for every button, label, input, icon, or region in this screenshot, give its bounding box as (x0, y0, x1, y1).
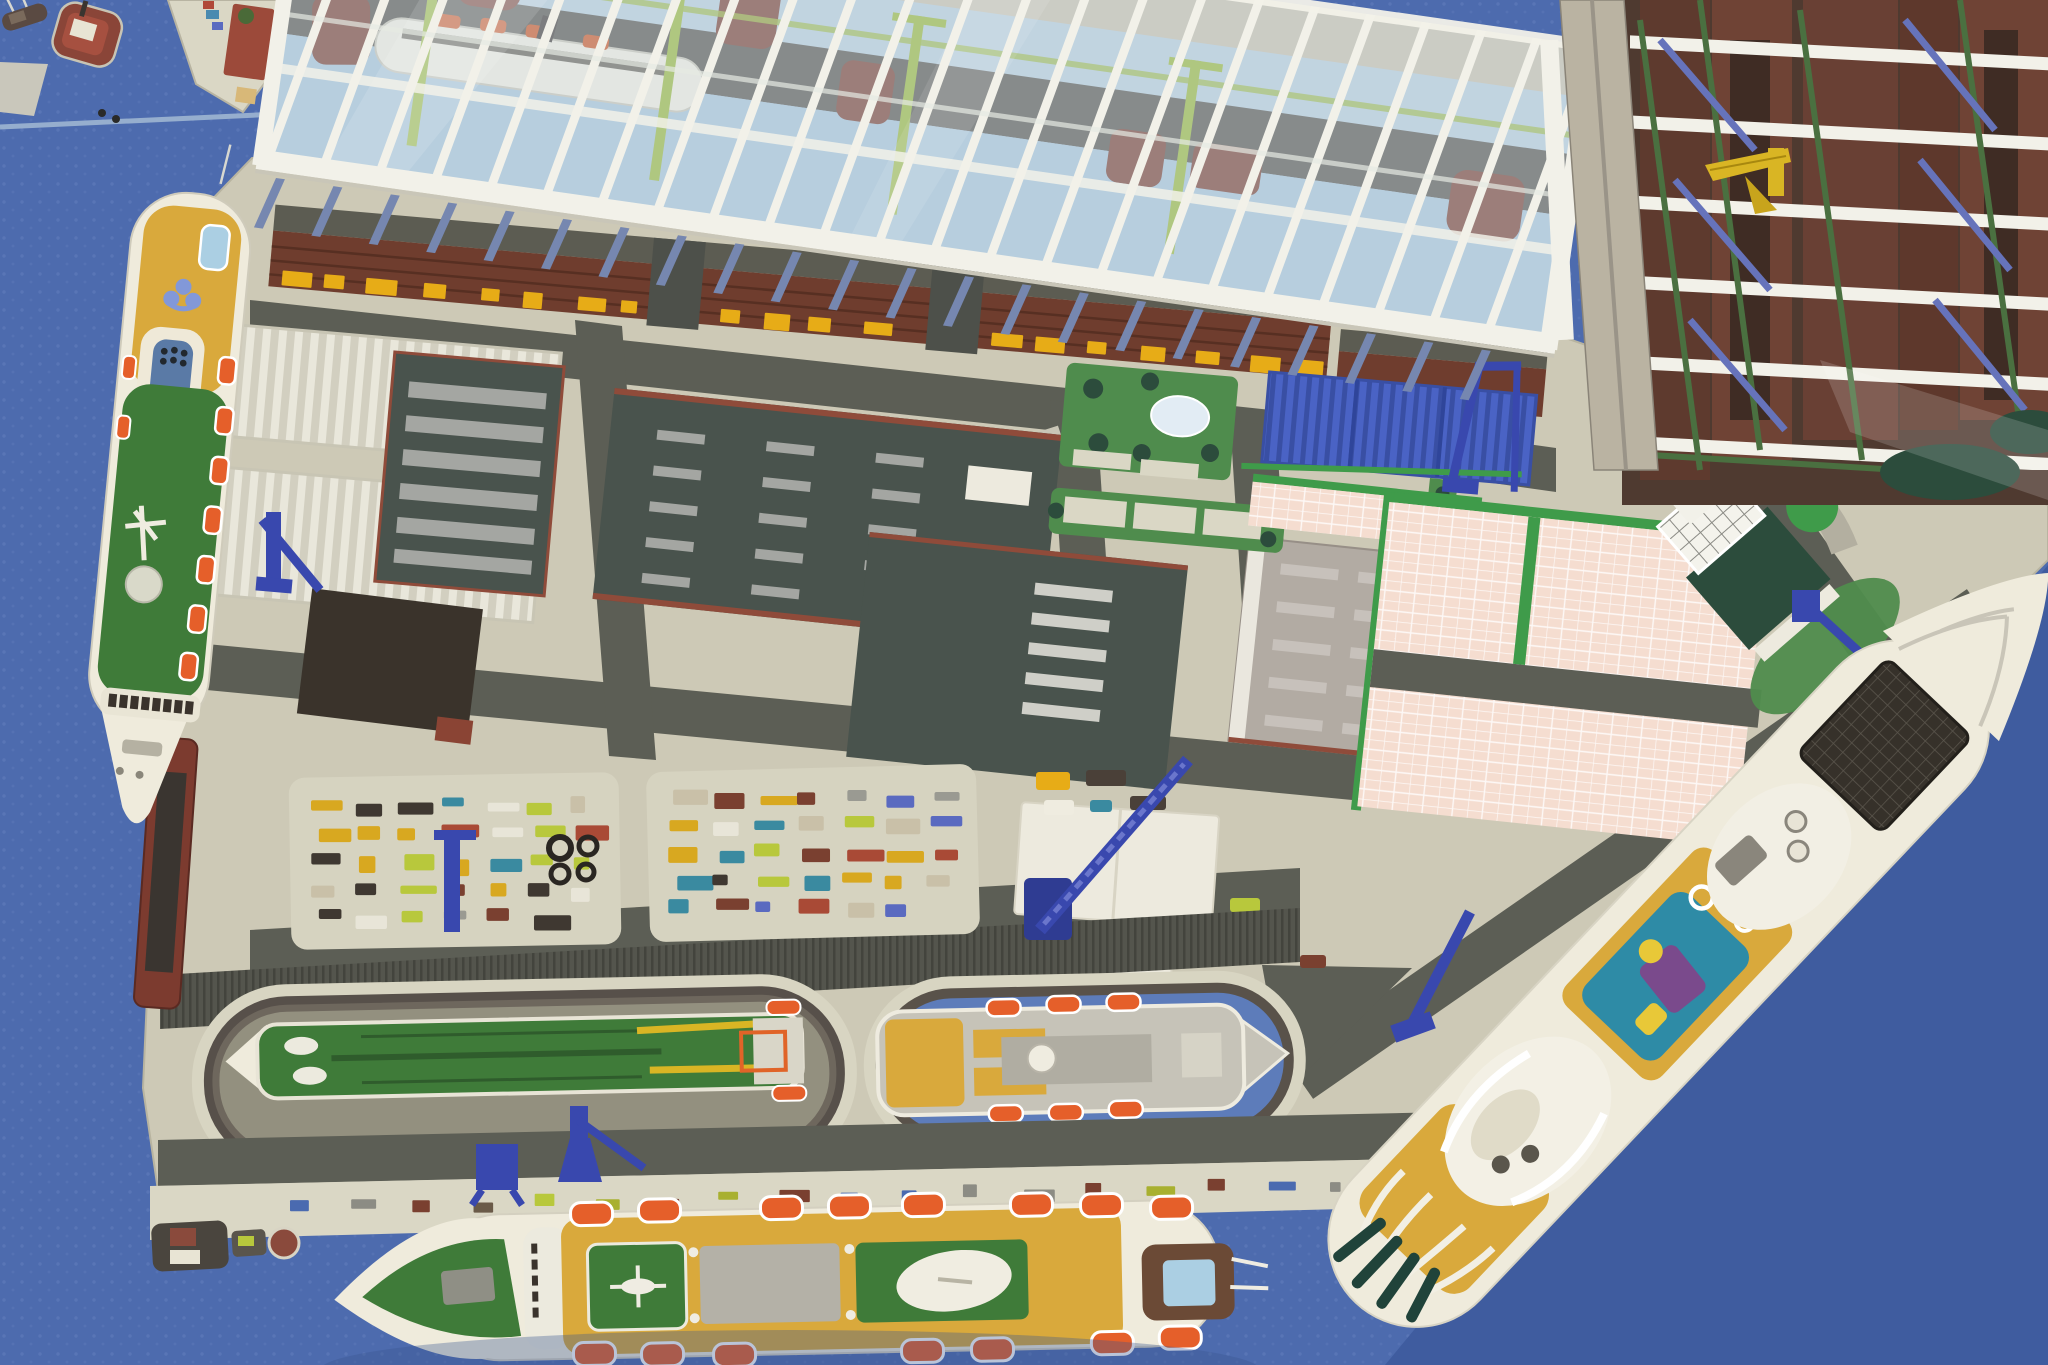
hatch (441, 1267, 496, 1306)
loading-door (1087, 341, 1107, 355)
quay-item (1330, 1182, 1341, 1192)
round-pontoon (269, 1228, 299, 1258)
cargo-item (714, 793, 744, 809)
loading-door (620, 300, 637, 313)
cargo-item (491, 883, 507, 896)
scene-svg (0, 0, 2048, 1365)
quay-item (718, 1192, 738, 1200)
loading-door (423, 283, 447, 299)
gantry-structure-east (1540, 0, 2048, 505)
cargo-item (356, 804, 382, 817)
cargo-item (492, 827, 523, 837)
loading-door (991, 333, 1023, 349)
loading-door (863, 321, 892, 336)
cargo-item (534, 915, 571, 930)
cargo-item (802, 849, 830, 863)
quay-item (290, 1200, 309, 1211)
cargo-item (887, 851, 924, 863)
cargo-item (799, 899, 830, 914)
cargo-item (397, 828, 415, 840)
funnel (1027, 1044, 1056, 1073)
cargo-item (311, 853, 340, 864)
cargo-item (720, 851, 745, 863)
cargo-item (931, 816, 963, 826)
cargo-item (311, 886, 334, 898)
quay-item (535, 1194, 555, 1206)
fore-deck (1181, 1033, 1222, 1078)
cargo-item (935, 792, 960, 801)
cargo-item (799, 816, 824, 831)
cargo-item (797, 792, 815, 805)
cargo-item (319, 909, 342, 919)
gray-deck-pad (699, 1243, 841, 1324)
cargo-item (761, 796, 798, 805)
loading-door (807, 316, 831, 332)
loading-door (763, 313, 790, 332)
loading-door (365, 278, 398, 296)
cargo-item (571, 888, 590, 902)
model-shipyard-photo (0, 0, 2048, 1365)
quay-item (412, 1200, 429, 1212)
cargo-item (847, 850, 884, 862)
cargo-item (442, 798, 464, 807)
cargo-item (885, 904, 906, 917)
cargo-item (804, 876, 830, 891)
cargo-item (716, 898, 749, 909)
cargo-item (848, 903, 874, 918)
cargo-item (358, 826, 380, 840)
cargo-item (487, 908, 509, 921)
cargo-item (404, 854, 434, 870)
stern-pool (198, 224, 230, 270)
cargo-item (355, 883, 376, 895)
cargo-item (754, 821, 784, 830)
cargo-item (400, 886, 436, 894)
park-with-pond (1058, 362, 1239, 483)
cargo-item (527, 803, 552, 815)
cargo-item (668, 899, 688, 913)
cargo-item (926, 875, 949, 887)
quay-item (1208, 1179, 1225, 1191)
loading-door (481, 288, 500, 302)
cargo-item (713, 822, 739, 836)
cargo-item (677, 876, 713, 891)
dock-ship (876, 990, 1289, 1125)
cargo-item (570, 796, 585, 813)
loading-door (281, 270, 312, 288)
tanker-superstructure (753, 1017, 804, 1084)
cargo-item (712, 875, 727, 886)
cargo-item (488, 803, 520, 812)
loading-door (1140, 346, 1166, 363)
cargo-item (935, 850, 958, 861)
cargo-item (528, 883, 550, 897)
cargo-item (758, 877, 789, 887)
cargo-item (402, 911, 423, 923)
building-southeast-dark (846, 532, 1188, 790)
cargo-item (490, 859, 522, 872)
cargo-item (886, 819, 920, 835)
cargo-item (885, 876, 902, 889)
helipad (587, 1242, 687, 1330)
cargo-item (319, 829, 351, 843)
cargo-item (356, 916, 387, 929)
cargo-item (673, 790, 708, 805)
cargo-item (398, 803, 434, 815)
quay-item (351, 1199, 376, 1208)
stern-pool (1141, 1243, 1235, 1321)
cargo-item (845, 816, 875, 827)
cargo-item (886, 796, 914, 808)
cargo-item (311, 800, 343, 810)
quay-item (963, 1184, 977, 1197)
cargo-item (755, 901, 770, 911)
cargo-item (842, 873, 872, 883)
building-vent-roof-west (375, 352, 564, 596)
quay-item (1269, 1182, 1296, 1191)
cargo-item (668, 847, 697, 863)
loading-door (323, 274, 344, 289)
loading-door (577, 296, 606, 312)
loading-door (522, 292, 543, 310)
loading-door (1195, 350, 1220, 365)
quay-item (1146, 1186, 1175, 1196)
cargo-item (359, 856, 375, 873)
cargo-item (670, 820, 699, 831)
cargo-item (754, 843, 780, 856)
pier-bush (238, 8, 254, 24)
cargo-item (847, 790, 866, 801)
loading-door (720, 309, 741, 324)
superstructure (1001, 1034, 1152, 1085)
